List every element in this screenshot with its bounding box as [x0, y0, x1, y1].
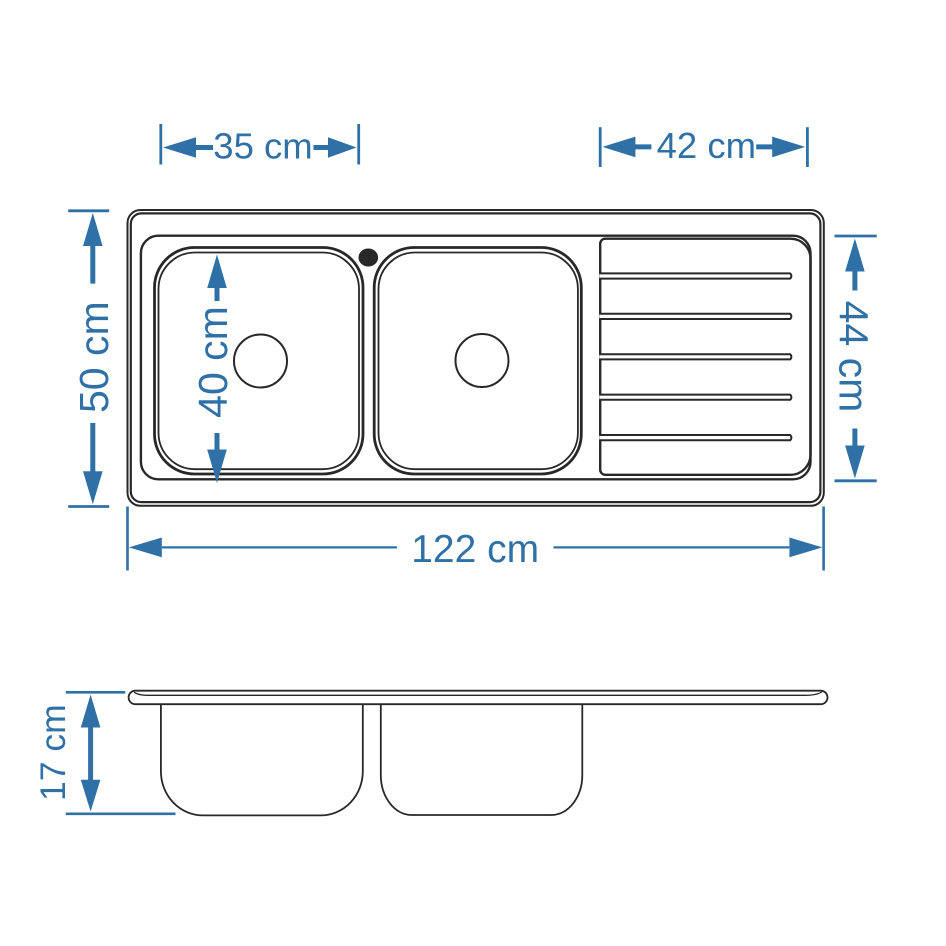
svg-text:17 cm: 17 cm: [33, 704, 73, 801]
svg-text:40 cm: 40 cm: [190, 306, 236, 418]
svg-text:122 cm: 122 cm: [411, 528, 539, 571]
svg-text:44 cm: 44 cm: [830, 301, 876, 413]
svg-text:50 cm: 50 cm: [71, 301, 117, 413]
svg-text:35 cm: 35 cm: [213, 125, 312, 166]
svg-text:42 cm: 42 cm: [657, 125, 756, 166]
